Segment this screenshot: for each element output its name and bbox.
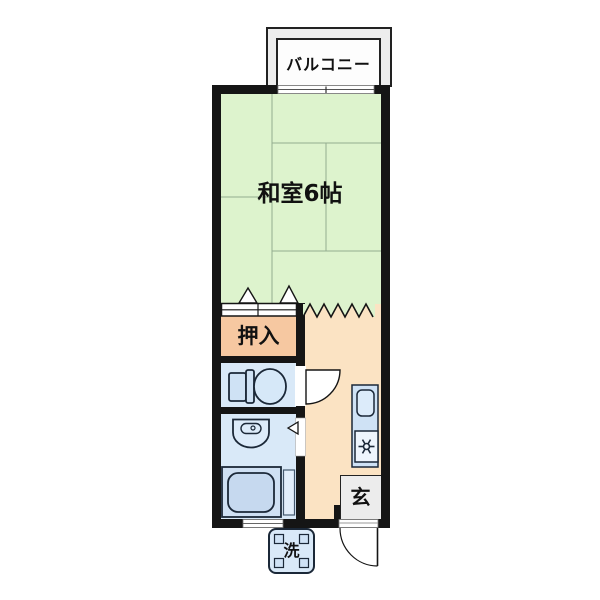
washitsu-label: 和室6帖 (240, 181, 360, 207)
balcony: バルコニー (266, 27, 392, 87)
genkan-label: 玄 (340, 486, 381, 509)
oshiire-label: 押入 (221, 324, 296, 348)
balcony-label-box: バルコニー (276, 38, 381, 87)
room-bathroom (221, 414, 296, 519)
wall-toilet-bottom (221, 407, 305, 414)
wall-oshiire-bottom (221, 356, 305, 363)
floorplan-canvas: バルコニー (0, 0, 600, 600)
balcony-label: バルコニー (286, 51, 371, 75)
room-toilet (221, 363, 296, 407)
washer-label: 洗 (269, 542, 314, 560)
